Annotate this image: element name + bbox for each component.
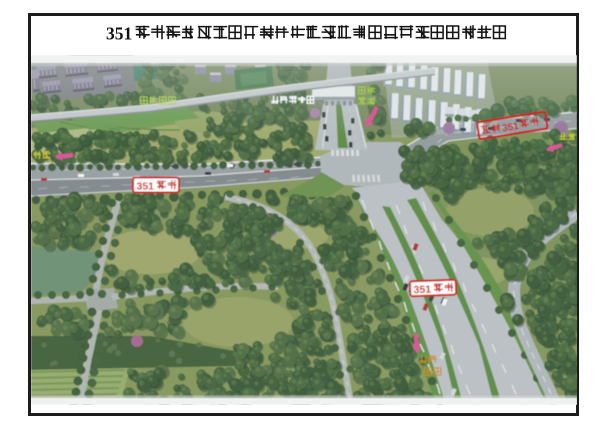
svg-text:351: 351	[106, 24, 132, 44]
